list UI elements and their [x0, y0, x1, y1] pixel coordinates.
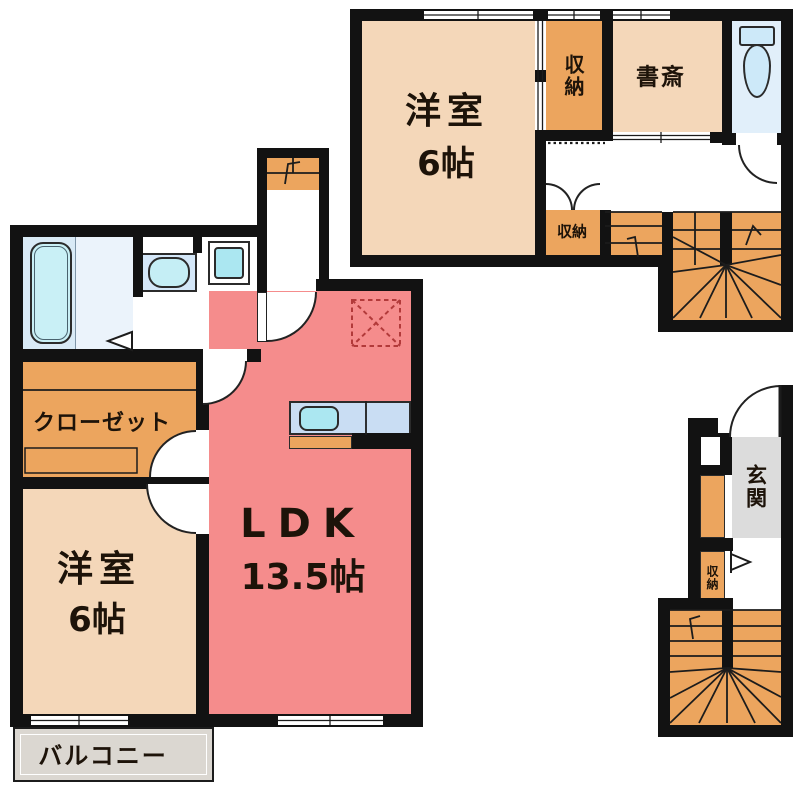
entrance-door-arc-icon — [729, 385, 781, 437]
washing-machine-drum — [214, 247, 244, 279]
wall — [350, 255, 670, 267]
wall — [777, 133, 781, 145]
wall — [600, 210, 611, 255]
stair-newel-wall — [722, 610, 733, 668]
wall — [411, 279, 423, 727]
window — [31, 714, 128, 727]
upper-bedroom — [362, 21, 535, 255]
door-flag-icon — [731, 551, 750, 573]
doorway — [736, 133, 777, 145]
main-bedroom-label: 洋室 — [57, 552, 141, 588]
stair-newel-wall — [720, 212, 732, 265]
wall — [602, 21, 613, 141]
floor-plan: 洋室 6帖 収納 書斎 収納 クローゼット 洋室 6帖 LDK 13.5帖 バル… — [0, 0, 800, 800]
wall — [133, 237, 143, 297]
pipe-space-inner — [701, 437, 720, 465]
sliding-door — [613, 132, 710, 143]
sliding-door-stop — [535, 70, 546, 82]
door-leaf — [257, 292, 267, 342]
wall — [10, 349, 203, 362]
window — [613, 9, 670, 21]
entrance-storage-label: 収納 — [706, 565, 718, 591]
washbasin-bowl-icon — [148, 257, 190, 288]
toilet-icon — [739, 26, 775, 46]
upper-bedroom-label: 洋室 — [405, 94, 489, 130]
wall — [193, 237, 202, 253]
shoe-cabinet — [700, 475, 725, 538]
wall — [700, 538, 733, 551]
wall — [316, 279, 423, 291]
wall — [535, 141, 546, 267]
window — [548, 9, 600, 21]
upper-study-label: 書斎 — [636, 67, 686, 90]
wall — [350, 9, 362, 267]
window — [278, 714, 383, 727]
wall — [10, 225, 260, 237]
ldk-size: 13.5帖 — [241, 560, 366, 596]
ldk-label: LDK — [240, 504, 366, 544]
wall — [319, 148, 329, 291]
window — [424, 9, 533, 21]
kitchen-sink-icon — [299, 406, 339, 431]
wall — [10, 225, 23, 727]
wall — [722, 21, 732, 133]
wall — [658, 320, 793, 332]
balcony-label: バルコニー — [38, 744, 168, 768]
wall — [247, 349, 261, 362]
wall — [658, 598, 670, 737]
wall — [535, 130, 613, 141]
wall — [722, 133, 736, 145]
tower-corridor — [267, 190, 319, 292]
upper-storage-small-label: 収納 — [557, 225, 587, 240]
tower-stairs — [267, 158, 319, 190]
bathroom-dry-area — [75, 237, 133, 350]
main-bedroom-size: 6帖 — [68, 603, 126, 637]
wall — [196, 362, 209, 714]
kitchen-lower-cabinet — [289, 436, 352, 449]
entrance-label: 玄関 — [745, 464, 766, 510]
wall — [781, 9, 793, 332]
wall — [257, 148, 267, 292]
bathtub-inner-line — [34, 246, 68, 340]
upper-bedroom-size: 6帖 — [417, 147, 475, 181]
main-closet-label: クローゼット — [33, 413, 171, 435]
doorway — [196, 484, 209, 534]
wall — [781, 385, 793, 737]
doorway — [196, 430, 209, 477]
wall — [658, 725, 793, 737]
upper-storage-label: 収納 — [563, 54, 583, 98]
